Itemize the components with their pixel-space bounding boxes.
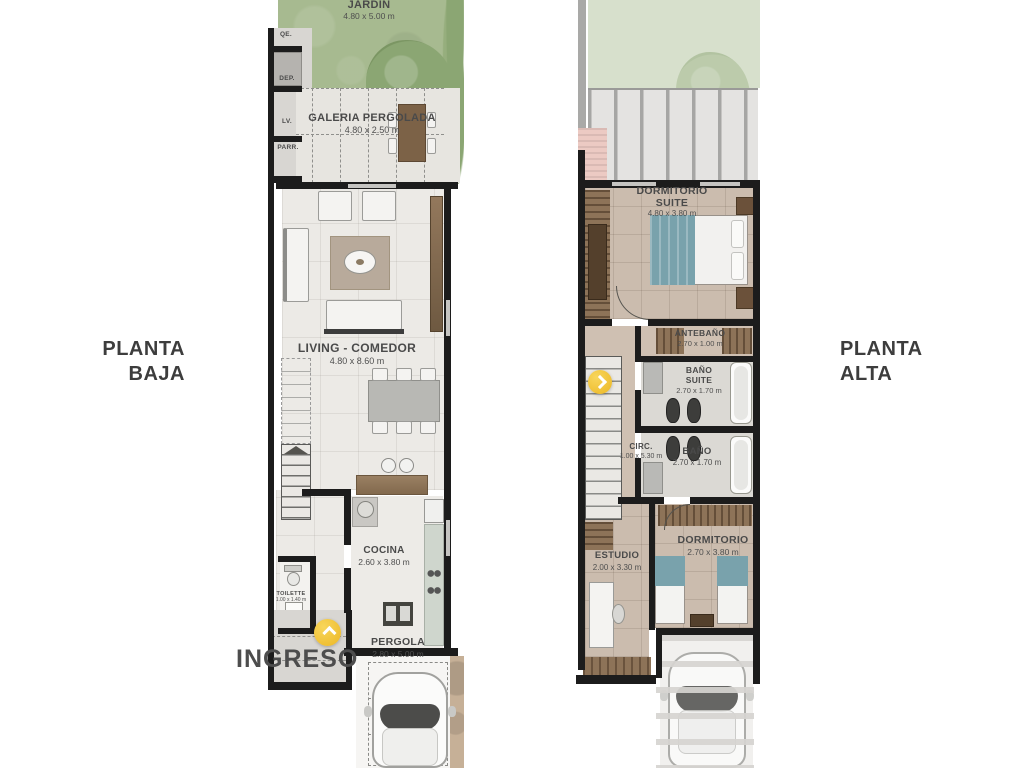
- room-label-jardin: JARDIN: [348, 0, 391, 11]
- util-label-lv: LV.: [282, 118, 292, 125]
- sofa-main: [326, 300, 402, 330]
- pergola-gridline: [340, 88, 341, 183]
- sink-bowl: [400, 606, 410, 621]
- armchair: [318, 191, 352, 221]
- wall: [268, 86, 302, 92]
- sink-bowl: [386, 606, 396, 621]
- wall: [278, 628, 316, 634]
- room-label-banosuite-2: SUITE: [686, 376, 713, 385]
- wall: [344, 568, 351, 613]
- wall: [578, 150, 585, 670]
- room-label-estudio: ESTUDIO: [595, 551, 639, 561]
- util-label-parr: PARR.: [277, 144, 298, 151]
- stairs-upper-dashed: [281, 358, 311, 444]
- dining-chair: [420, 421, 436, 434]
- bar-stool: [399, 458, 414, 473]
- bed-blanket: [650, 215, 695, 285]
- wall: [344, 489, 351, 545]
- room-label-dormitorio: DORMITORIO: [677, 535, 748, 547]
- kitchen-basin: [357, 501, 374, 518]
- room-label-suite-1: DORMITORIO: [636, 186, 707, 198]
- room-label-pergola: PERGOLA: [371, 637, 425, 649]
- bed-blanket: [717, 556, 748, 586]
- bathtub: [730, 362, 752, 424]
- sofa-base: [324, 329, 404, 334]
- entrance-label: INGRESO: [236, 645, 358, 674]
- wall: [268, 46, 302, 52]
- room-label-antebano: ANTEBAÑO: [675, 329, 726, 338]
- nightstand: [736, 287, 754, 309]
- wall: [618, 497, 664, 504]
- dining-table: [368, 380, 440, 422]
- room-dims-toilette: 1.00 x 1.40 m: [276, 598, 306, 604]
- wall: [641, 426, 760, 433]
- room-label-cocina: COCINA: [363, 545, 404, 556]
- wall: [583, 319, 612, 326]
- wall: [641, 356, 760, 362]
- pillow: [731, 252, 744, 280]
- stove: [426, 566, 442, 600]
- planta-baja-title-line2: BAJA: [55, 362, 185, 387]
- wall: [635, 390, 641, 433]
- wall: [268, 136, 302, 142]
- dining-chair: [372, 368, 388, 381]
- stairs-lower: [281, 444, 311, 520]
- wall: [649, 504, 655, 630]
- gray-wall-top: [578, 0, 586, 130]
- wardrobe-cabinet: [588, 224, 607, 300]
- wall: [444, 182, 451, 656]
- closet: [722, 328, 752, 354]
- room-dims-jardin: 4.80 x 5.00 m: [343, 12, 395, 21]
- room-label-circ: CIRC.: [629, 443, 652, 452]
- tv-panel: [430, 196, 443, 332]
- wall: [310, 556, 316, 634]
- entrance-marker: [314, 619, 341, 646]
- window-segment: [348, 184, 396, 188]
- room-label-galeria: GALERIA PERGOLADA: [308, 112, 436, 124]
- room-dims-estudio: 2.00 x 3.30 m: [593, 564, 641, 573]
- room-dims-suite: 4.80 x 3.80 m: [648, 210, 696, 219]
- wall: [268, 682, 352, 690]
- wall: [656, 628, 760, 635]
- wall: [648, 319, 760, 326]
- room-dims-antebano: 2.70 x 1.00 m: [677, 340, 722, 348]
- arrow-up-icon: [322, 625, 336, 639]
- planta-baja-title: PLANTA BAJA: [55, 337, 185, 387]
- breakfast-bar: [356, 475, 428, 495]
- room-label-bano: BAÑO: [682, 447, 711, 457]
- room-dims-banosuite: 2.70 x 1.70 m: [676, 387, 721, 395]
- util-label-dep: DEP.: [279, 75, 295, 82]
- stairs-up-arrow-icon: [284, 446, 308, 454]
- pillow: [731, 220, 744, 248]
- room-dims-circ: 1.00 x 5.30 m: [620, 453, 662, 461]
- desk: [589, 582, 614, 648]
- closet: [585, 522, 613, 550]
- wall: [576, 675, 656, 684]
- galeria-chair: [427, 138, 436, 154]
- car-mirror: [448, 706, 456, 717]
- planta-alta-title: PLANTA ALTA: [840, 337, 970, 387]
- toilet-tank: [284, 565, 302, 572]
- room-label-living: LIVING - COMEDOR: [298, 342, 416, 355]
- coffee-table-dot: [356, 259, 364, 265]
- room-label-suite-2: SUITE: [656, 198, 688, 210]
- dining-chair: [372, 421, 388, 434]
- wall: [656, 628, 662, 678]
- armchair: [362, 191, 396, 221]
- dining-chair: [396, 421, 412, 434]
- bidet: [687, 398, 701, 423]
- bed-blanket: [655, 556, 685, 586]
- room-dims-living: 4.80 x 8.60 m: [330, 357, 385, 367]
- balcony-strip: [583, 657, 651, 675]
- room-dims-dormitorio: 2.70 x 3.80 m: [687, 548, 739, 557]
- car-mirror: [364, 706, 372, 717]
- room-dims-pergola: 2.80 x 5.00 m: [372, 650, 424, 659]
- room-dims-bano: 2.70 x 1.70 m: [673, 459, 721, 468]
- planta-alta-title-line2: ALTA: [840, 362, 970, 387]
- vanity: [643, 362, 663, 394]
- wall: [690, 497, 760, 504]
- room-dims-galeria: 4.80 x 2.50 m: [345, 126, 400, 136]
- pergola-gridline: [296, 88, 444, 89]
- util-label-qe: QE.: [280, 31, 292, 38]
- bathtub: [730, 436, 752, 494]
- window-segment: [446, 300, 450, 336]
- floorplan-image: JARDIN 4.80 x 5.00 m GALERIA PERGOLADA 4…: [0, 0, 1024, 768]
- toilet-bowl: [287, 572, 300, 586]
- planta-alta-title-line1: PLANTA: [840, 337, 970, 362]
- bar-stool: [381, 458, 396, 473]
- car-windshield: [380, 704, 440, 730]
- nightstand: [736, 197, 754, 215]
- dining-chair: [420, 368, 436, 381]
- pergola-roof-slats: [588, 88, 758, 180]
- pergola-gridline: [312, 88, 313, 183]
- desk-chair: [612, 604, 625, 624]
- dresser: [690, 614, 714, 627]
- toilet: [666, 398, 680, 423]
- vanity: [643, 462, 663, 494]
- stairs-direction-marker: [588, 370, 612, 394]
- sofa-left: [283, 228, 309, 302]
- room-label-banosuite-1: BAÑO: [686, 366, 712, 375]
- planta-baja-title-line1: PLANTA: [55, 337, 185, 362]
- window-segment: [446, 520, 450, 556]
- carport-roof-slats: [656, 635, 754, 768]
- dining-chair: [396, 368, 412, 381]
- arrow-right-icon: [593, 375, 607, 389]
- wall: [268, 28, 274, 690]
- wall: [635, 326, 641, 362]
- room-dims-cocina: 2.60 x 3.80 m: [358, 558, 410, 567]
- galeria-chair: [388, 138, 397, 154]
- fridge: [424, 499, 444, 523]
- car-roof: [382, 728, 438, 766]
